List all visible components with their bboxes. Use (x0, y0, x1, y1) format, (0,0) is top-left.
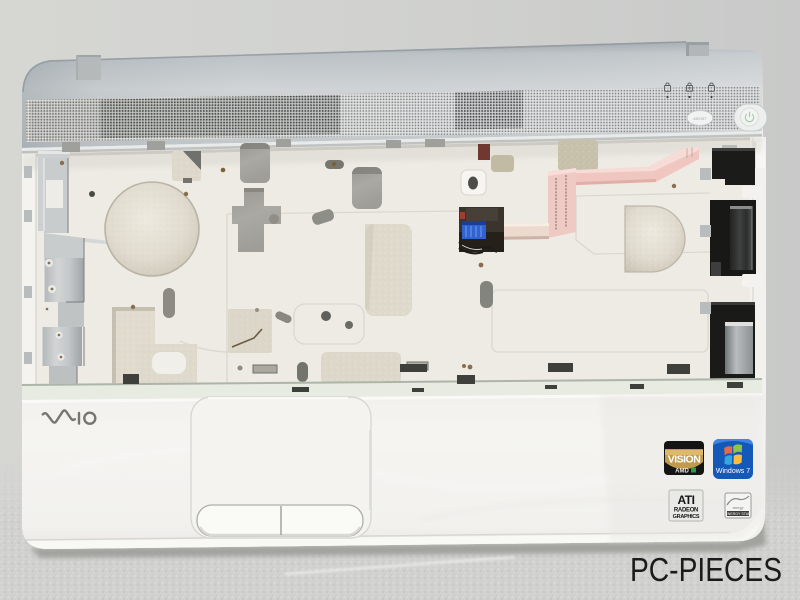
svg-text:AMD: AMD (675, 469, 689, 475)
svg-text:GRAPHICS: GRAPHICS (673, 514, 700, 520)
svg-text:ATI: ATI (678, 493, 695, 507)
svg-text:energy: energy (733, 505, 744, 510)
svg-text:ASSIST: ASSIST (693, 117, 706, 121)
svg-text:PC-PIECES: PC-PIECES (630, 551, 782, 588)
svg-text:RADEON: RADEON (674, 508, 698, 514)
svg-text:ENERGY STAR: ENERGY STAR (725, 512, 751, 516)
svg-text:VISION: VISION (668, 454, 701, 466)
svg-text:Windows 7: Windows 7 (716, 468, 750, 475)
